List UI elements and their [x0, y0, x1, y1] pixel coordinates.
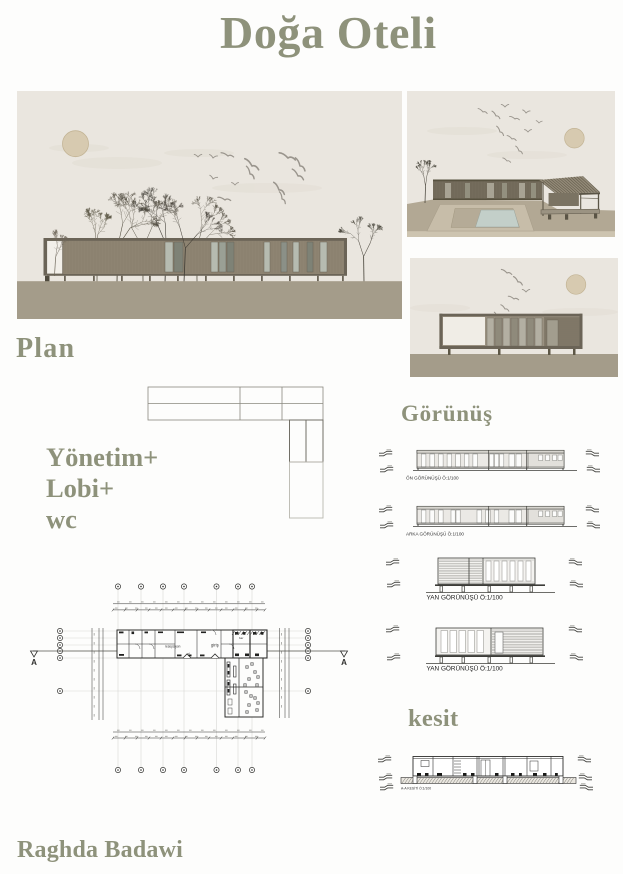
svg-text:bar: bar — [239, 636, 243, 640]
svg-text:YAN GÖRÜNÜŞÜ Ö:1/100: YAN GÖRÜNÜŞÜ Ö:1/100 — [427, 665, 504, 673]
svg-text:resepsiyon: resepsiyon — [165, 645, 181, 649]
svg-text:A-A KESİTİ Ö:1/100: A-A KESİTİ Ö:1/100 — [401, 786, 431, 791]
svg-text:A: A — [341, 658, 347, 667]
svg-text:ARKA GÖRÜNÜŞÜ Ö:1/100: ARKA GÖRÜNÜŞÜ Ö:1/100 — [406, 531, 464, 537]
svg-text:A: A — [31, 658, 37, 667]
svg-text:YAN GÖRÜNÜŞÜ Ö:1/100: YAN GÖRÜNÜŞÜ Ö:1/100 — [427, 594, 504, 602]
svg-text:giriş: giriş — [211, 643, 219, 648]
svg-text:ÖN GÖRÜNÜŞÜ Ö:1/100: ÖN GÖRÜNÜŞÜ Ö:1/100 — [406, 475, 459, 481]
